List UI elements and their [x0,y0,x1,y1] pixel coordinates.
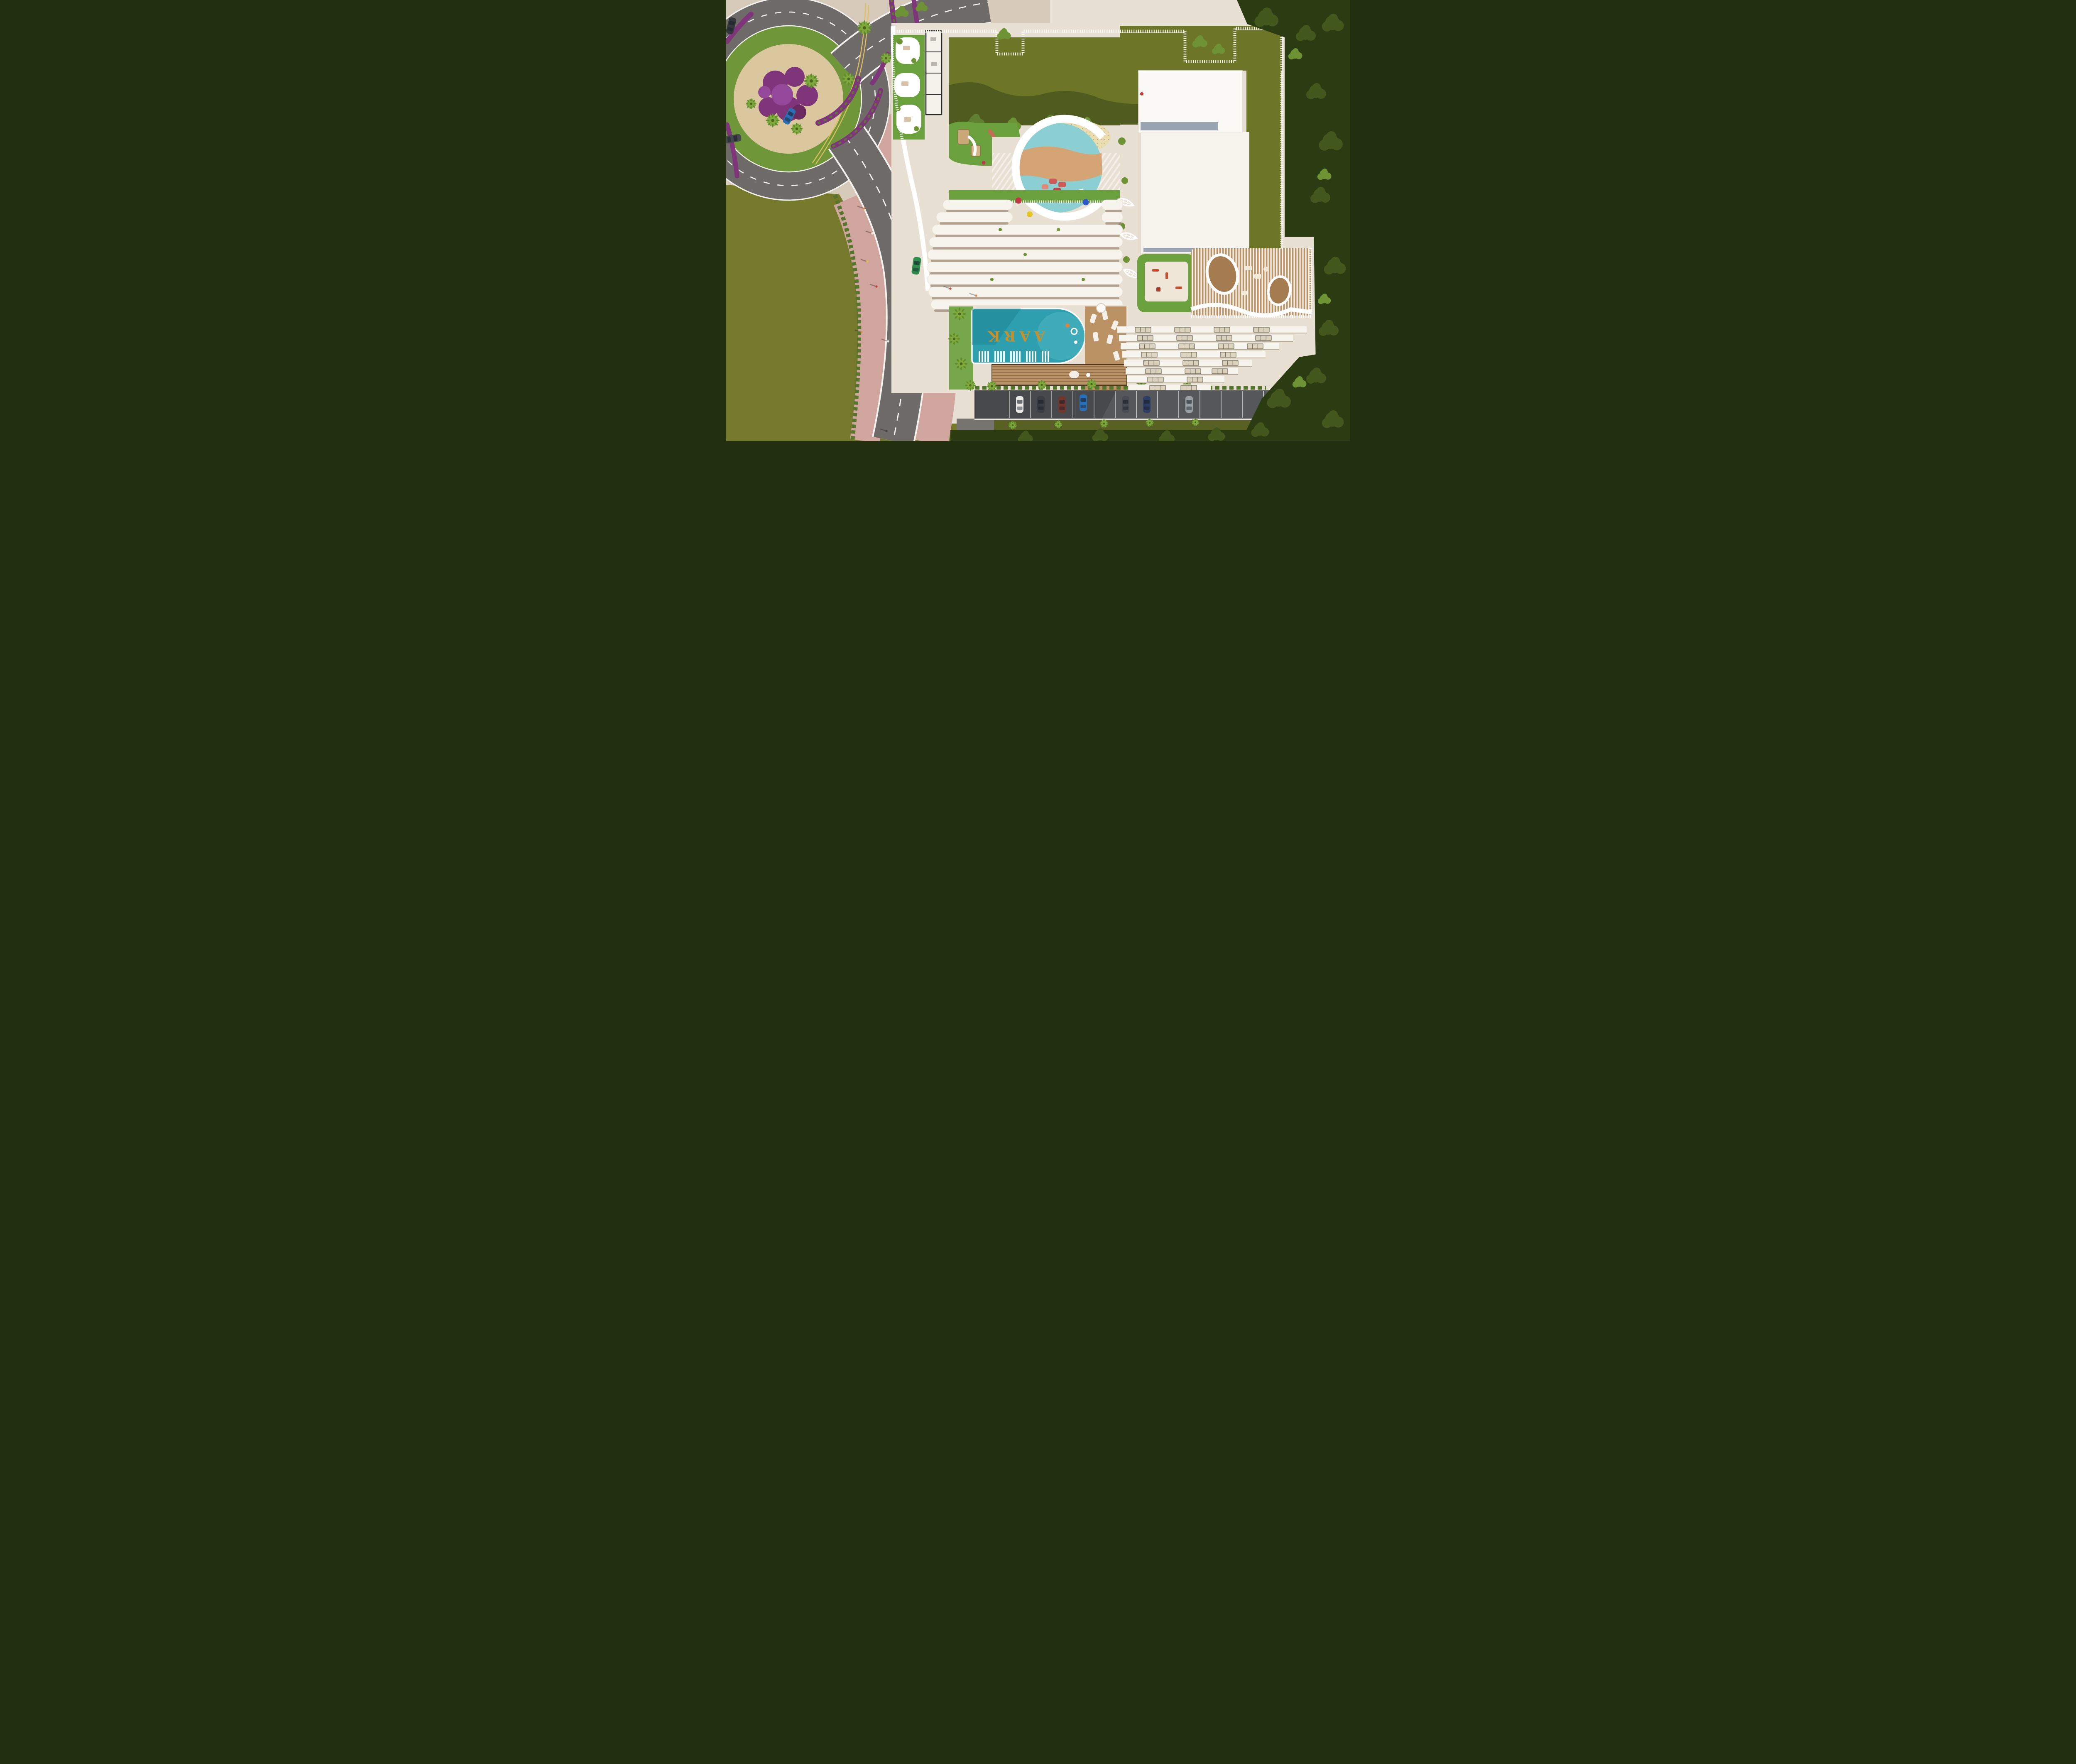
red-beanbag [1016,198,1022,204]
parked-car-white [1016,396,1023,413]
floor-row [1129,385,1211,391]
walkway-paving [1120,125,1138,266]
balcony-band [929,237,1123,250]
row-palm [1037,380,1047,390]
swimming-pool: AARK [972,309,1085,363]
yellow-beanbag [1027,211,1033,217]
cafe-terrace [992,365,1127,385]
parked-car-silver [1185,396,1193,413]
scene-svg: AARK [726,0,1350,441]
street-palm [746,98,756,109]
penthouse-skylight [1141,122,1218,130]
floor-row [1127,376,1224,383]
penthouse-parapet [1138,71,1242,73]
balcony-band [928,250,1123,262]
parked-car-darkgrey [1037,396,1045,413]
strip-palm [1191,418,1199,426]
roof-slab [1138,132,1249,253]
floor-row [1121,343,1279,350]
pool-palm [955,357,967,370]
blue-beanbag [1083,199,1089,206]
floor-row [1119,335,1293,341]
strip-palm [1054,420,1062,429]
aerial-render-stage: AARK [726,0,1350,441]
floor-row [1122,351,1266,358]
east-roof-lawn [1246,71,1281,253]
red-roof-marker [1140,92,1143,96]
building-shadow-on-parking [974,390,1116,419]
strip-palm [1146,419,1154,427]
strip-palm [1008,421,1017,430]
pool-palm [948,333,960,345]
row-palm [987,381,997,391]
pool-float-orange [1065,323,1070,328]
island-palm [804,73,819,88]
gym-deck [1145,262,1188,301]
pool-palm [953,307,966,320]
balcony-band [927,262,1123,274]
street-palm [880,52,892,64]
trees-east-lower [1314,224,1350,365]
cafe-statue [1086,373,1090,377]
parking-curb [974,419,1290,420]
balcony-band [927,274,1123,287]
trees-south-band [950,430,1350,441]
parked-car-navy [1143,396,1151,413]
spa-terrace [1191,248,1312,316]
deck-parasol [1097,304,1106,313]
floor-row [1126,368,1238,375]
building-podium: AARK [891,23,1332,441]
parking-lawn-strip [994,420,1290,431]
parked-car-grey [1122,396,1129,413]
pergola-furniture [930,37,936,41]
pool-float-white [1074,341,1077,344]
balcony-band [932,225,1123,237]
glass-pergola [926,31,942,115]
street-palm [842,72,855,85]
balcony-band [928,287,1123,299]
pool-palm [965,380,976,391]
pool-logo-text: AARK [984,328,1046,344]
strip-palm [1099,419,1109,428]
parked-car-maroon [1058,396,1066,413]
cafe-pergola-slats [992,365,1127,385]
outdoor-gym [1137,254,1195,312]
row-palm [1086,379,1097,389]
pergola-furniture [931,62,937,66]
cafe-table [1069,371,1079,378]
floor-row [1117,326,1307,333]
island-palm [791,123,803,135]
main-roof [1138,71,1249,253]
floor-row [1124,360,1252,366]
parked-car-blue [1080,394,1087,411]
street-palm [857,20,872,35]
island-palm [766,113,780,127]
seating-nooks [893,35,925,140]
roof-slab-edge-shadow [1138,132,1141,253]
